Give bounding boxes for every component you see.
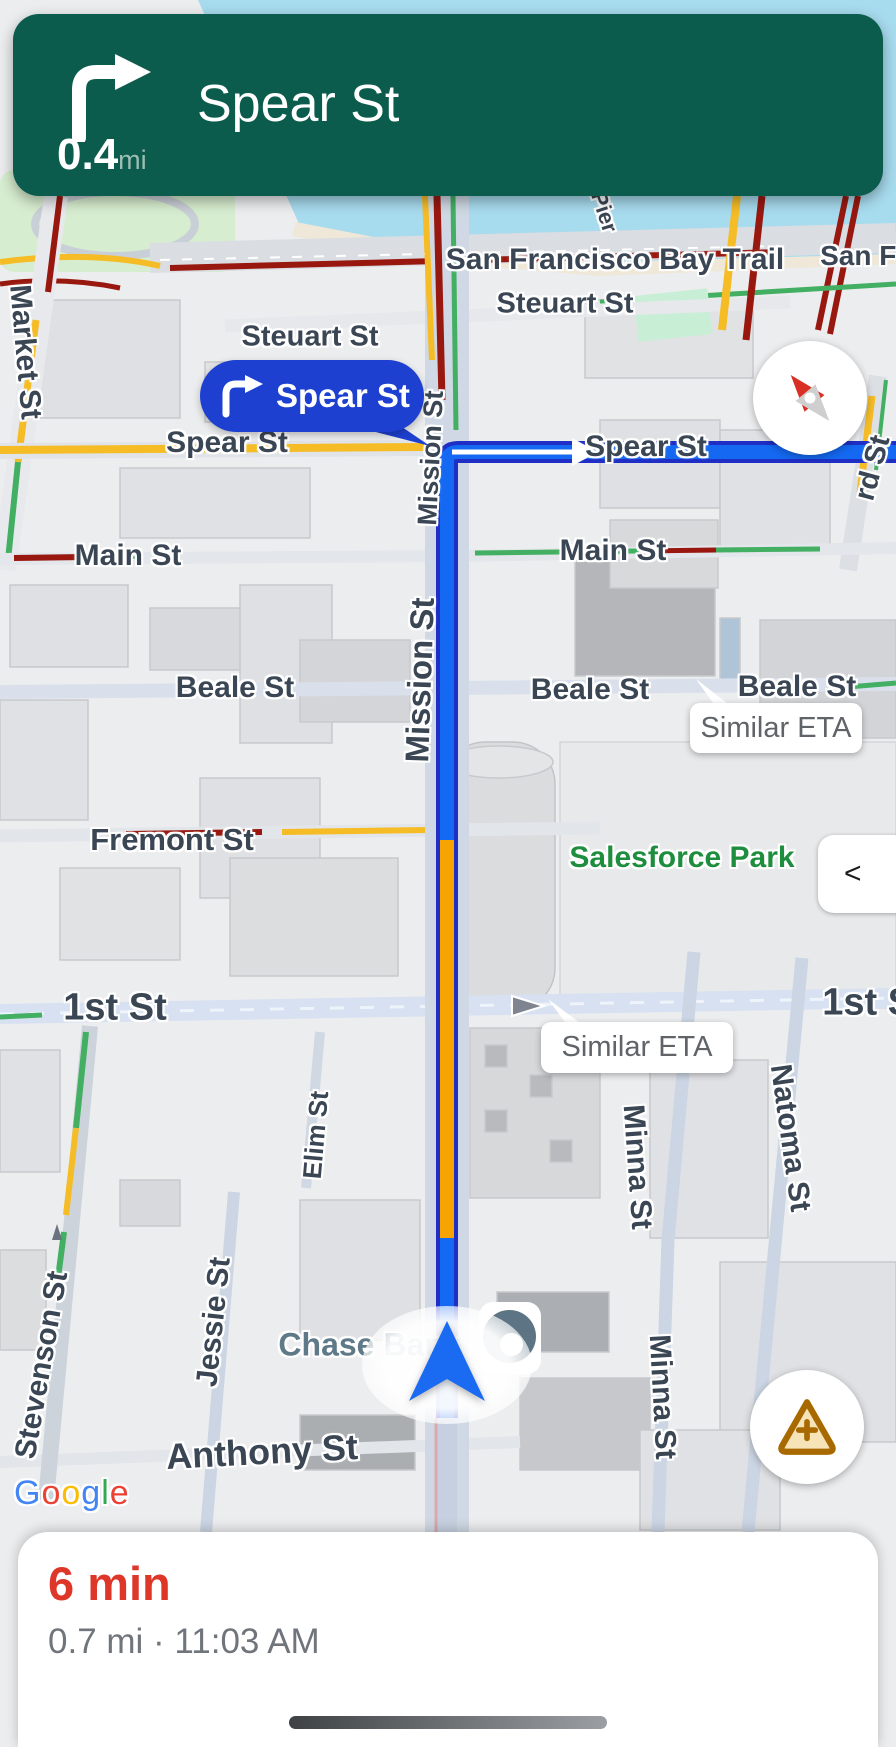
collapse-panel-button[interactable]: < — [818, 835, 896, 913]
google-logo-letter: G — [14, 1474, 41, 1512]
callout-street-label: Spear St — [276, 377, 410, 415]
distance-to-turn: 0.4mi — [57, 130, 147, 180]
collapse-chevron: < — [844, 857, 862, 891]
warning-triangle-icon — [774, 1394, 840, 1460]
next-street-name: Spear St — [197, 74, 399, 134]
navigation-banner: Spear St 0.4mi — [13, 14, 883, 196]
google-logo-letter: o — [61, 1474, 81, 1512]
similar-eta-bubble[interactable]: Similar ETA — [690, 703, 862, 753]
google-logo-letter: l — [101, 1474, 110, 1512]
next-turn-callout[interactable]: Spear St — [200, 360, 424, 432]
google-logo-letter: e — [110, 1474, 130, 1512]
eta-time: 6 min — [48, 1556, 171, 1611]
home-indicator-handle[interactable] — [289, 1716, 607, 1729]
trip-summary-sheet[interactable]: 6 min 0.7 mi · 11:03 AM — [18, 1532, 878, 1747]
google-logo: Google — [14, 1474, 130, 1513]
turn-right-icon — [218, 374, 264, 418]
compass-needle-icon — [775, 363, 845, 433]
current-location-arrow — [401, 1316, 493, 1408]
map-canvas[interactable] — [0, 0, 896, 1532]
similar-eta-text: Similar ETA — [701, 712, 852, 745]
report-incident-button[interactable] — [750, 1370, 864, 1484]
distance-unit: mi — [118, 145, 147, 175]
trip-details: 0.7 mi · 11:03 AM — [48, 1622, 320, 1662]
similar-eta-text: Similar ETA — [562, 1031, 713, 1064]
compass-button[interactable] — [753, 341, 867, 455]
google-logo-letter: g — [81, 1474, 101, 1512]
google-logo-letter: o — [41, 1474, 61, 1512]
turn-right-icon — [65, 50, 157, 142]
similar-eta-bubble[interactable]: Similar ETA — [541, 1022, 733, 1073]
navigation-screen: San Francisco Bay TrailSan FranPierSteua… — [0, 0, 896, 1747]
